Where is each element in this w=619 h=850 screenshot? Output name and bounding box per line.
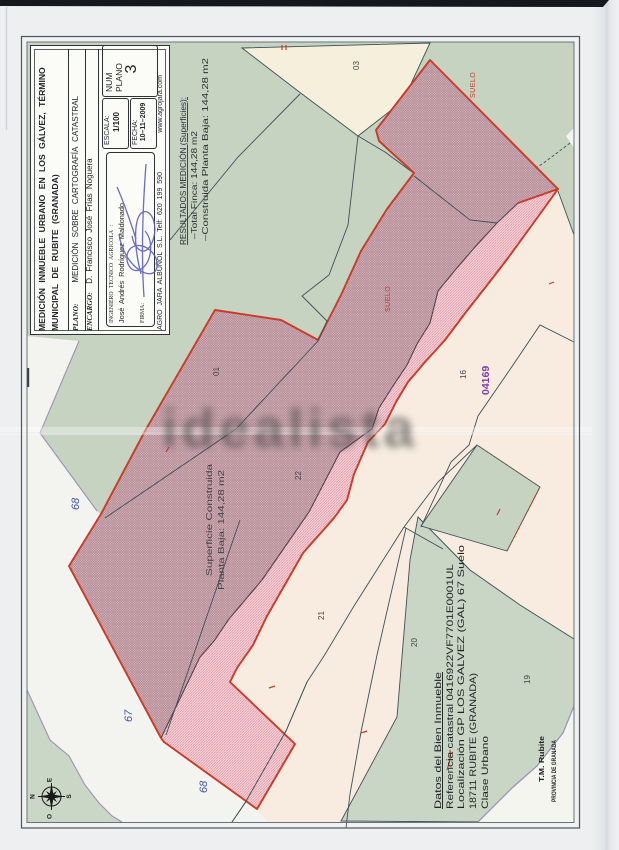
svg-text:Datos del Bien Inmueble: Datos del Bien Inmueble [433,672,444,809]
svg-text:18711 RUBITE (GRANADA): 18711 RUBITE (GRANADA) [468,673,479,809]
svg-text:Referencia catastral 0416922VF: Referencia catastral 0416922VF7701E0001U… [445,564,456,809]
svg-text:SUELO: SUELO [385,286,392,312]
svg-text:67: 67 [123,709,135,722]
svg-text:–Construida Planta Baja: 144,2: –Construida Planta Baja: 144,28 m2 [200,58,210,241]
svg-text:68: 68 [70,497,82,510]
svg-text:03: 03 [352,61,361,70]
svg-text:68: 68 [198,780,210,793]
svg-text:PROVINCIA DE GRANADA: PROVINCIA DE GRANADA [551,740,558,802]
svg-text:01: 01 [212,367,221,376]
svg-text:22: 22 [294,471,303,480]
svg-text:16: 16 [459,370,468,379]
svg-text:E: E [47,777,54,782]
svg-text:Planta Baja: 144,28 m2: Planta Baja: 144,28 m2 [216,470,226,590]
svg-text:RESULTADOS MEDICIÓN (Superfici: RESULTADOS MEDICIÓN (Superficies): [178,97,188,245]
svg-text:T.M. Rubite: T.M. Rubite [539,736,546,782]
svg-text:SUELO: SUELO [470,72,477,98]
svg-text:04169: 04169 [480,366,492,395]
svg-text:–Total Finca: 144,28 m2: –Total Finca: 144,28 m2 [189,131,199,239]
svg-text:Superficie Construida: Superficie Construida [204,464,214,576]
svg-text:N: N [30,794,37,799]
svg-text:21: 21 [317,611,326,620]
svg-text:19: 19 [523,675,532,684]
svg-text:Localización GP LOS GALVEZ (GA: Localización GP LOS GALVEZ (GAL) 67 Suel… [456,545,467,809]
svg-text:S: S [66,794,73,799]
svg-text:Clase Urbano: Clase Urbano [480,736,491,809]
svg-text:20: 20 [410,638,419,647]
svg-text:O: O [47,814,54,819]
